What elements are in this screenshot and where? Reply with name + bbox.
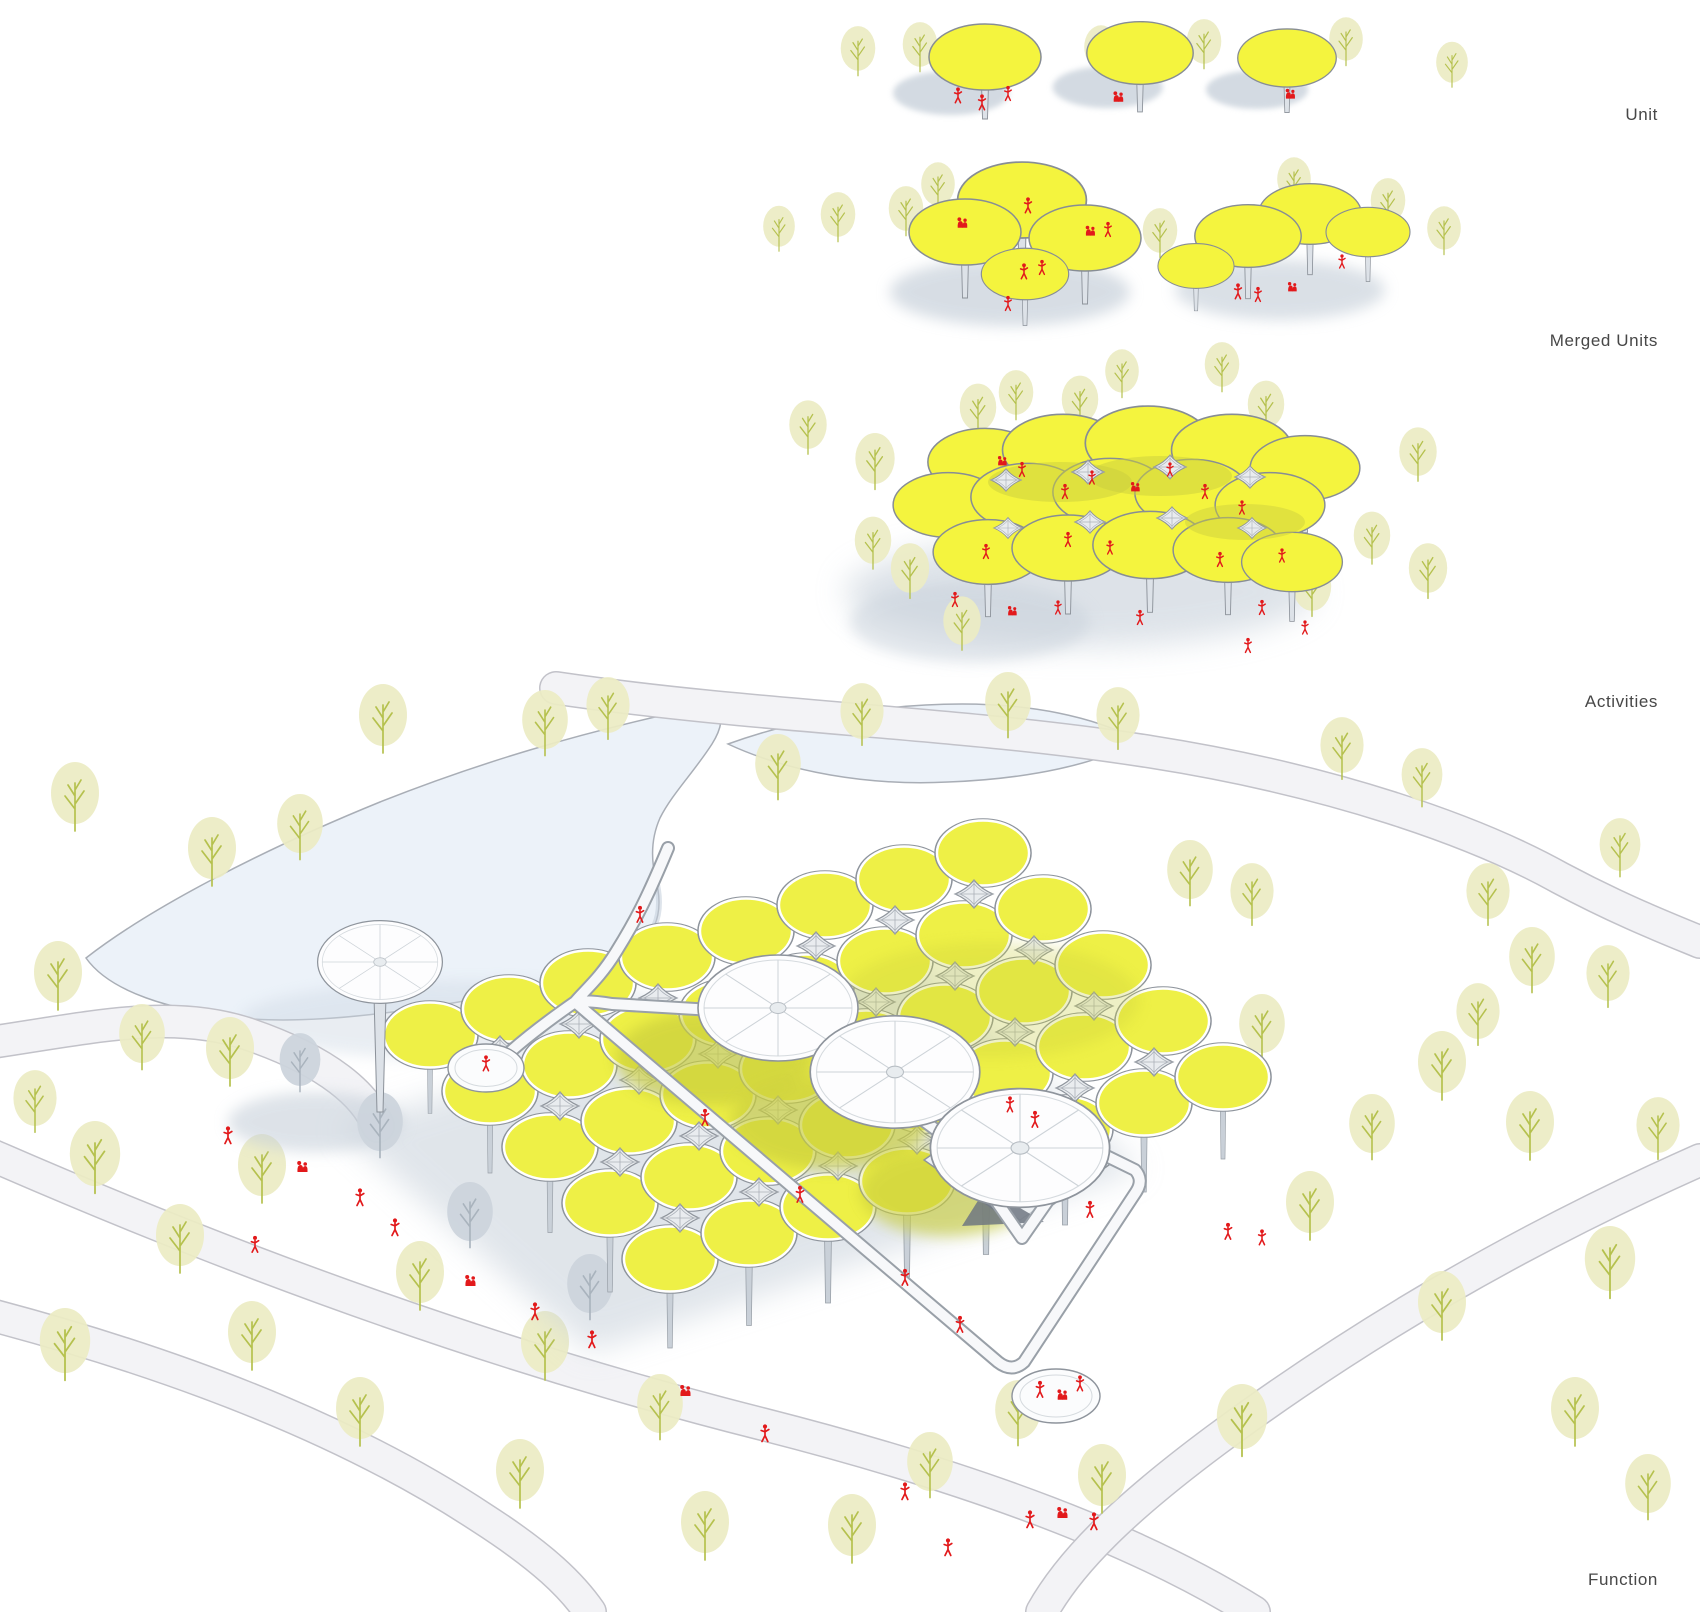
roof-disk (930, 1089, 1109, 1208)
tree-icon (1427, 206, 1461, 254)
tree-icon (156, 1204, 204, 1273)
label-activities: Activities (1585, 692, 1658, 711)
roof-disk (318, 921, 443, 1004)
person-icon (944, 1538, 952, 1555)
column-icon (746, 1259, 753, 1326)
person-icon (1245, 638, 1251, 653)
tree-icon (999, 370, 1034, 420)
tree-icon (1230, 863, 1273, 925)
tree-icon (1399, 427, 1436, 481)
tree-icon (681, 1491, 729, 1560)
tree-icon (40, 1308, 90, 1380)
person-icon (1302, 620, 1308, 634)
tree-icon (34, 941, 82, 1010)
tree-icon (855, 433, 894, 490)
tree-shaded-icon (280, 1033, 321, 1092)
person-icon (1086, 1201, 1093, 1217)
canopy-cell (935, 819, 1031, 887)
canopy-shade (1185, 504, 1305, 540)
function-site-plan (0, 672, 1700, 1612)
tree-icon (1600, 818, 1641, 877)
merged-units-diagram (763, 157, 1461, 326)
tree-icon (119, 1004, 165, 1070)
tree-icon (1506, 1091, 1554, 1160)
person-icon (901, 1482, 909, 1499)
person-icon (391, 1218, 399, 1235)
canopy-cell (995, 875, 1091, 943)
tree-icon (1625, 1454, 1671, 1520)
activities-diagram (789, 342, 1447, 662)
person-icon (1224, 1223, 1231, 1239)
column-icon (667, 1285, 673, 1348)
unit-canopies (893, 22, 1336, 119)
tree-icon (1551, 1377, 1599, 1446)
tree-icon (763, 206, 795, 252)
tree-icon (1418, 1031, 1466, 1100)
canopy-unit (1206, 29, 1336, 113)
tree-icon (1354, 512, 1390, 564)
label-unit: Unit (1625, 105, 1658, 124)
unit-diagram (841, 17, 1468, 119)
person-icon (297, 1161, 307, 1172)
ground-platform-south (1012, 1369, 1100, 1423)
person-icon (356, 1188, 364, 1205)
tree-icon (841, 26, 876, 76)
tree-icon (1436, 42, 1468, 88)
tree-icon (637, 1374, 683, 1440)
tree-icon (1456, 983, 1499, 1045)
tree-icon (1349, 1094, 1395, 1160)
tree-icon (1586, 945, 1629, 1007)
tree-icon (206, 1017, 254, 1086)
canopy-cell (1175, 1043, 1271, 1111)
tree-icon (51, 762, 99, 831)
diagram-canvas: Unit Merged Units Activities Function (0, 0, 1700, 1612)
tree-icon (755, 734, 801, 800)
label-function: Function (1588, 1570, 1658, 1589)
tree-icon (1105, 349, 1139, 397)
tree-icon (1418, 1271, 1466, 1340)
tree-icon (496, 1439, 544, 1508)
tree-icon (1509, 927, 1555, 993)
tree-icon (789, 400, 826, 454)
person-icon (465, 1275, 475, 1286)
tree-icon (821, 192, 856, 242)
tree-icon (1409, 543, 1447, 598)
tree-icon (1167, 840, 1213, 906)
column-icon (607, 1229, 613, 1292)
tree-icon (1585, 1226, 1635, 1298)
ground-platform-left (448, 1044, 524, 1092)
tree-icon (1466, 863, 1509, 925)
tree-icon (828, 1494, 876, 1563)
person-icon (1259, 1229, 1266, 1244)
architecture-concept-page: Unit Merged Units Activities Function (0, 0, 1700, 1612)
tree-icon (359, 684, 407, 753)
tree-icon (1286, 1171, 1334, 1240)
column-icon (547, 1173, 553, 1233)
tree-icon (228, 1301, 276, 1370)
tree-icon (1320, 717, 1363, 779)
tree-icon (13, 1070, 56, 1132)
column-icon (825, 1233, 832, 1303)
canopy-shade (1088, 456, 1232, 496)
label-merged-units: Merged Units (1550, 331, 1658, 350)
tree-icon (1636, 1097, 1679, 1159)
tree-icon (1205, 342, 1240, 392)
